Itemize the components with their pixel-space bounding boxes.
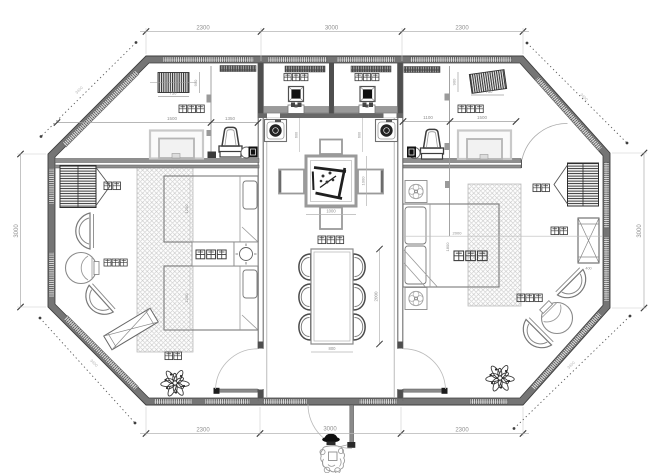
svg-text:600: 600: [295, 132, 299, 138]
svg-text:2300: 2300: [455, 26, 469, 32]
svg-text:1200: 1200: [184, 293, 189, 303]
svg-text:3000: 3000: [323, 427, 337, 433]
svg-text:1500: 1500: [167, 116, 178, 121]
svg-text:800: 800: [329, 346, 337, 351]
svg-text:1350: 1350: [225, 116, 236, 121]
svg-text:900: 900: [193, 79, 198, 86]
svg-text:1100: 1100: [423, 115, 433, 120]
svg-text:1500: 1500: [477, 115, 488, 120]
svg-text:2000: 2000: [453, 231, 463, 236]
svg-text:1800: 1800: [445, 242, 450, 252]
svg-text:1000: 1000: [361, 176, 366, 186]
svg-text:1000: 1000: [326, 209, 336, 214]
svg-text:3000: 3000: [14, 224, 20, 238]
svg-text:750: 750: [486, 89, 494, 94]
svg-text:2300: 2300: [196, 26, 210, 32]
svg-text:2300: 2300: [455, 428, 469, 434]
svg-text:400: 400: [585, 267, 591, 271]
svg-text:600: 600: [358, 132, 362, 138]
svg-text:2000: 2000: [374, 291, 379, 302]
svg-text:3000: 3000: [637, 224, 643, 238]
svg-text:900: 900: [452, 78, 457, 85]
svg-text:2300: 2300: [196, 428, 210, 434]
svg-text:3000: 3000: [325, 26, 339, 32]
svg-text:1200: 1200: [184, 204, 189, 214]
svg-text:750: 750: [170, 91, 178, 96]
